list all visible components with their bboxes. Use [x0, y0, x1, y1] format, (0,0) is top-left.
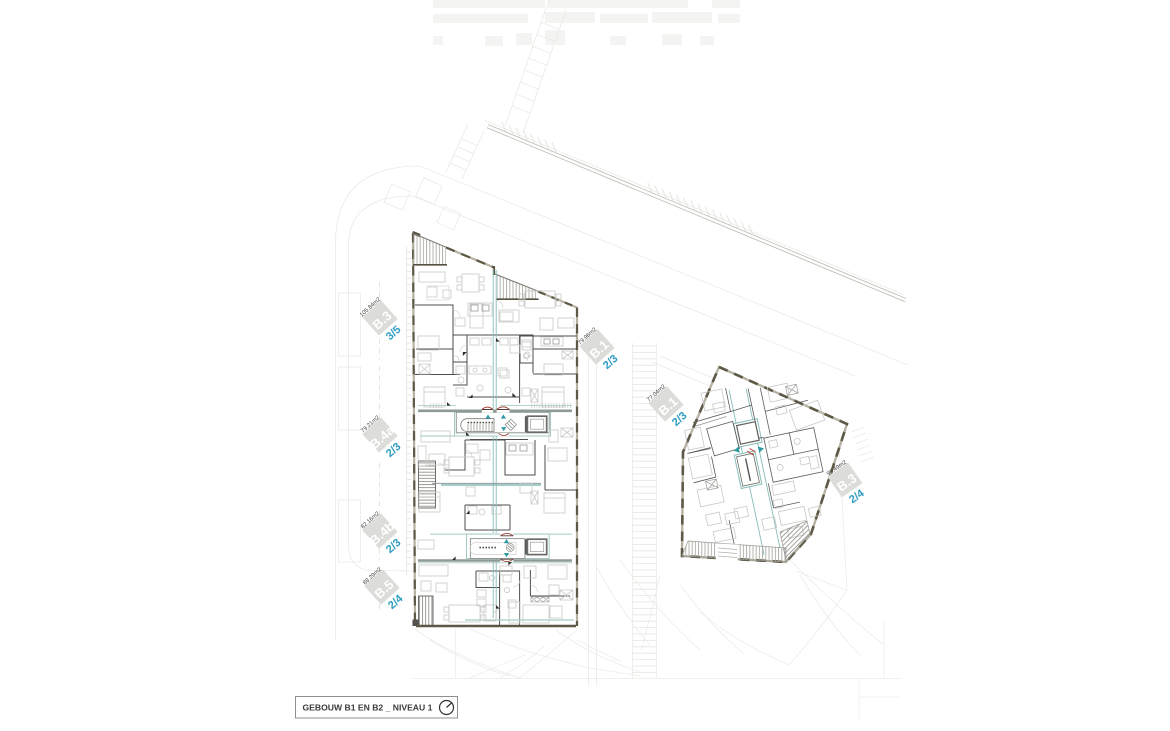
- svg-text:GEBOUW B1 EN B2 _ NIVEAU 1: GEBOUW B1 EN B2 _ NIVEAU 1: [303, 703, 433, 713]
